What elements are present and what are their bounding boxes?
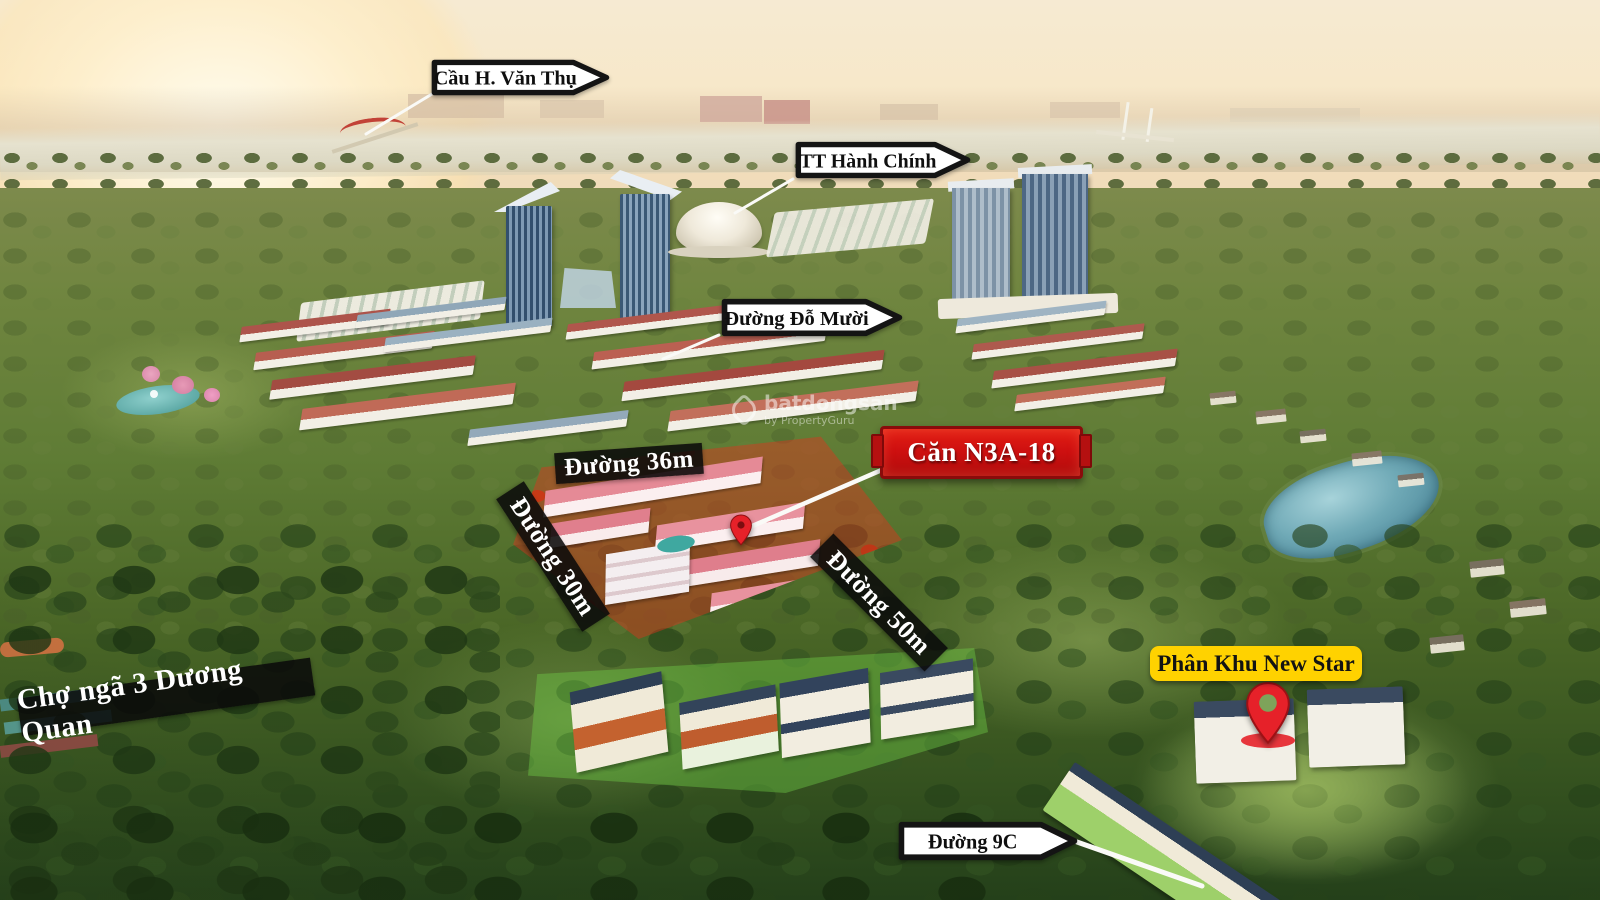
watermark-brand: batdongsan (764, 392, 898, 414)
watermark-byline: by PropertyGuru (764, 414, 898, 427)
phan-khu-new-star-label: Phân Khu New Star (1150, 646, 1362, 681)
leader-bridge (366, 94, 432, 134)
direction-sign-tt-hanh-chinh: TT Hành Chính (792, 140, 973, 180)
watermark-logo-icon (727, 393, 761, 427)
new-star-label-text: Phân Khu New Star (1157, 651, 1354, 677)
leader-do-muoi (663, 335, 719, 359)
watermark: batdongsan by PropertyGuru (732, 392, 898, 427)
sign-label: Đường Đỗ Mười (724, 308, 869, 330)
leader-lines (0, 0, 1600, 900)
sign-label: Đường 9C (928, 831, 1018, 853)
direction-sign-duong-do-muoi: Đường Đỗ Mười (718, 297, 905, 338)
leader-9c (1077, 842, 1202, 886)
banner-ornament (871, 434, 884, 468)
sign-label: TT Hành Chính (800, 150, 937, 172)
unit-banner-label: Căn N3A-18 (907, 437, 1055, 468)
masterplan-aerial-scene: Cầu H. Văn Thụ TT Hành Chính Đường Đỗ Mư… (0, 0, 1600, 900)
banner-ornament (1079, 434, 1092, 468)
location-pin-icon (729, 514, 753, 546)
location-pin-icon (1244, 681, 1292, 745)
direction-sign-duong-9c: Đường 9C (895, 820, 1080, 862)
sign-label: Cầu H. Văn Thụ (434, 68, 577, 90)
leader-unit (750, 469, 884, 527)
leader-admin-center (735, 179, 793, 213)
unit-banner: Căn N3A-18 (880, 426, 1083, 479)
direction-sign-cau-h-van-thu: Cầu H. Văn Thụ (428, 58, 612, 97)
